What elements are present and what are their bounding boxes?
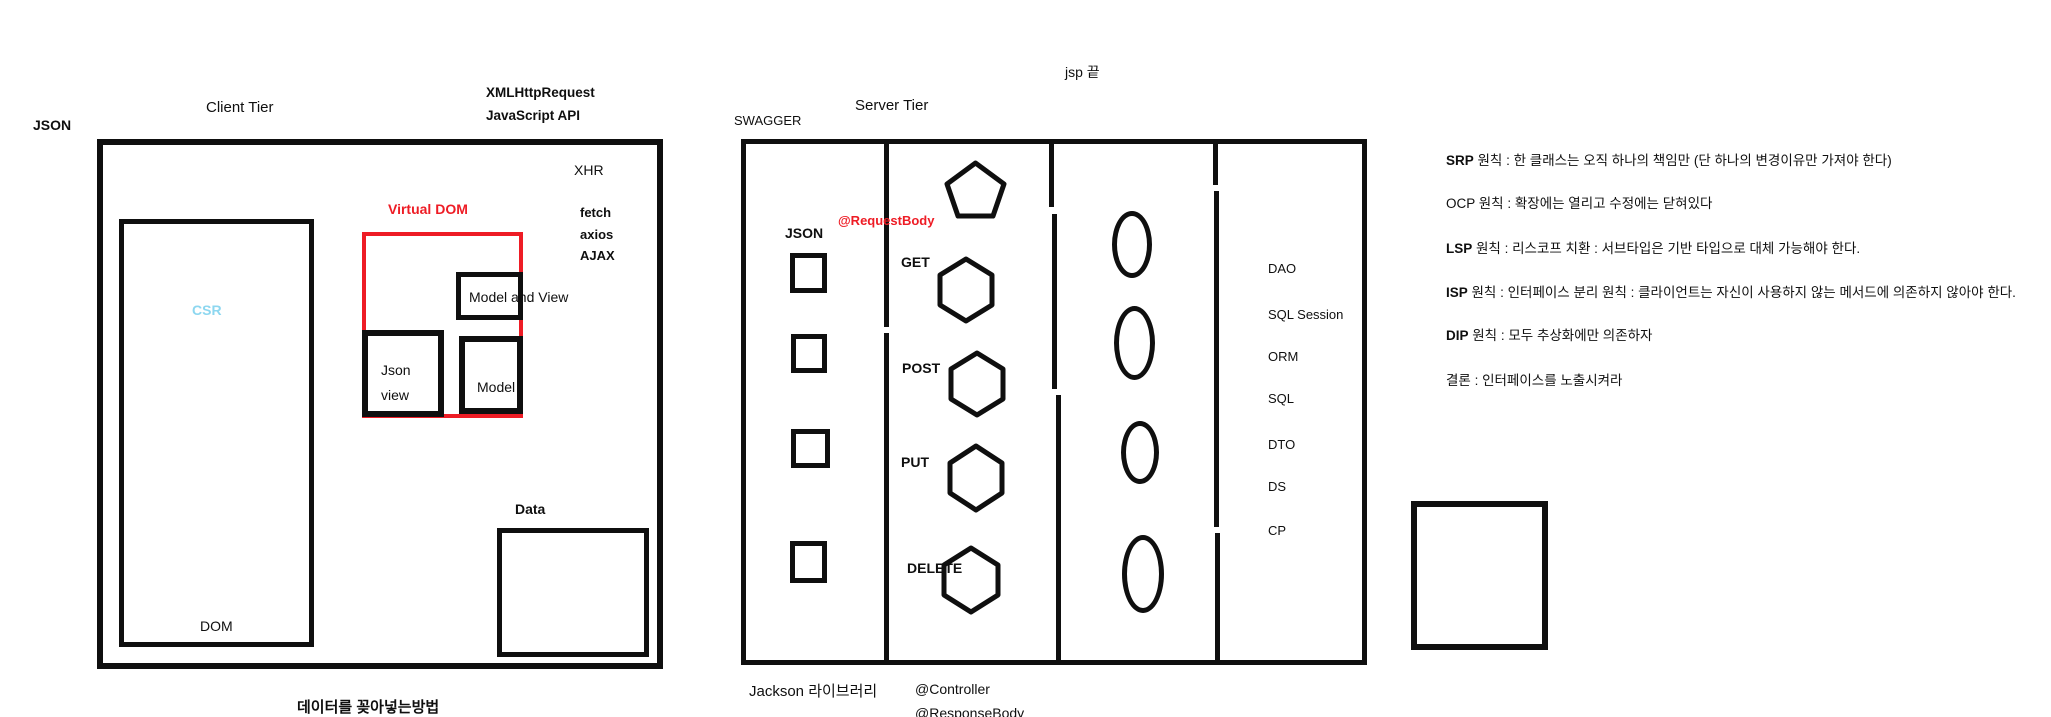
pentagon-shape <box>944 160 1007 219</box>
principle-text-isp: 원칙 : 인터페이스 분리 원칙 : 클라이언트는 자신이 사용하지 않는 메서… <box>1468 285 2016 300</box>
swagger-label: SWAGGER <box>734 114 801 129</box>
hexagon-shape-post <box>948 350 1006 418</box>
dom-box <box>119 219 314 647</box>
principle-text-lsp: 원칙 : 리스코프 치환 : 서브타입은 기반 타입으로 대체 가능해야 한다. <box>1472 241 1860 256</box>
principle-line-conclusion: 결론 : 인터페이스를 노출시켜라 <box>1446 373 1622 389</box>
json-label-server: JSON <box>785 225 823 241</box>
stack-label-sql-session: SQL Session <box>1268 308 1343 323</box>
principle-line-dip: DIP 원칙 : 모두 추상화에만 의존하자 <box>1446 328 1652 344</box>
virtual-dom-label: Virtual DOM <box>388 201 468 217</box>
principle-line-srp: SRP 원칙 : 한 클래스는 오직 하나의 책임만 (단 하나의 변경이유만 … <box>1446 153 1892 169</box>
javascript-api-label: JavaScript API <box>486 108 580 124</box>
stack-label-sql: SQL <box>1268 392 1294 407</box>
axios-label: axios <box>580 228 613 243</box>
model-label: Model <box>477 379 515 395</box>
square-shape-4 <box>790 541 827 583</box>
method-label-get: GET <box>901 254 930 270</box>
json-label-left: JSON <box>33 117 71 133</box>
whiteboard-canvas: JSON Client Tier XMLHttpRequest JavaScri… <box>0 0 2051 717</box>
principle-text-ocp: 원칙 : 확장에는 열리고 수정에는 닫혀있다 <box>1475 196 1712 211</box>
ellipse-shape-3 <box>1121 421 1159 484</box>
principle-acronym-srp: SRP <box>1446 153 1474 168</box>
method-label-post: POST <box>902 360 940 376</box>
xmlhttprequest-label: XMLHttpRequest <box>486 85 595 101</box>
json-view-label-line1: Json <box>381 362 411 378</box>
client-caption: 데이터를 꽂아넣는방법 <box>297 699 439 716</box>
stack-label-ds: DS <box>1268 480 1286 495</box>
jsp-note: jsp 끝 <box>1065 64 1100 80</box>
model-box <box>459 336 523 414</box>
stack-label-dao: DAO <box>1268 262 1296 277</box>
hexagon-shape-get <box>937 256 995 324</box>
server-tier-title: Server Tier <box>855 97 928 114</box>
principle-acronym-conclusion: 결론 <box>1446 373 1471 388</box>
method-label-put: PUT <box>901 454 929 470</box>
server-divider-3-middle <box>1214 191 1219 527</box>
square-shape-1 <box>790 253 827 293</box>
ajax-label: AJAX <box>580 249 615 264</box>
xhr-label: XHR <box>574 162 604 178</box>
principle-text-dip: 원칙 : 모두 추상화에만 의존하자 <box>1469 328 1653 343</box>
principle-acronym-isp: ISP <box>1446 285 1468 300</box>
data-box <box>497 528 649 657</box>
hexagon-shape-put <box>947 443 1005 513</box>
server-divider-3-top <box>1213 139 1218 185</box>
principle-line-lsp: LSP 원칙 : 리스코프 치환 : 서브타입은 기반 타입으로 대체 가능해야… <box>1446 241 1860 257</box>
principle-text-srp: 원칙 : 한 클래스는 오직 하나의 책임만 (단 하나의 변경이유만 가져야 … <box>1474 153 1892 168</box>
stack-label-cp: CP <box>1268 524 1286 539</box>
principle-text-conclusion: : 인터페이스를 노출시켜라 <box>1471 373 1623 388</box>
principle-acronym-ocp: OCP <box>1446 196 1475 211</box>
ellipse-shape-4 <box>1122 535 1164 613</box>
principle-line-ocp: OCP 원칙 : 확장에는 열리고 수정에는 닫혀있다 <box>1446 196 1712 212</box>
square-shape-3 <box>791 429 830 468</box>
data-label: Data <box>515 501 545 517</box>
stack-label-orm: ORM <box>1268 350 1298 365</box>
response-body-annotation: @ResponseBody <box>915 705 1024 717</box>
server-divider-1-bottom <box>884 333 889 664</box>
ellipse-shape-1 <box>1112 211 1152 278</box>
square-shape-2 <box>791 334 827 373</box>
model-and-view-label: Model and View <box>469 289 568 305</box>
server-divider-2-top <box>1049 139 1054 207</box>
principle-line-isp: ISP 원칙 : 인터페이스 분리 원칙 : 클라이언트는 자신이 사용하지 않… <box>1446 285 2016 301</box>
controller-annotation: @Controller <box>915 681 990 697</box>
bottom-right-square-box <box>1411 501 1548 650</box>
client-tier-title: Client Tier <box>206 99 274 116</box>
csr-label: CSR <box>192 302 222 318</box>
principle-acronym-dip: DIP <box>1446 328 1469 343</box>
jackson-library-label: Jackson 라이브러리 <box>749 683 877 700</box>
ellipse-shape-2 <box>1114 306 1155 380</box>
principle-acronym-lsp: LSP <box>1446 241 1472 256</box>
stack-label-dto: DTO <box>1268 438 1295 453</box>
server-divider-3-bottom <box>1215 533 1220 664</box>
server-divider-2-bottom <box>1056 395 1061 664</box>
server-divider-1-top <box>884 139 889 327</box>
fetch-label: fetch <box>580 206 611 221</box>
json-view-label-line2: view <box>381 387 409 403</box>
hexagon-shape-delete <box>941 545 1001 615</box>
server-divider-2-middle <box>1052 214 1057 389</box>
request-body-annotation: @RequestBody <box>838 214 934 229</box>
dom-label: DOM <box>200 618 233 634</box>
